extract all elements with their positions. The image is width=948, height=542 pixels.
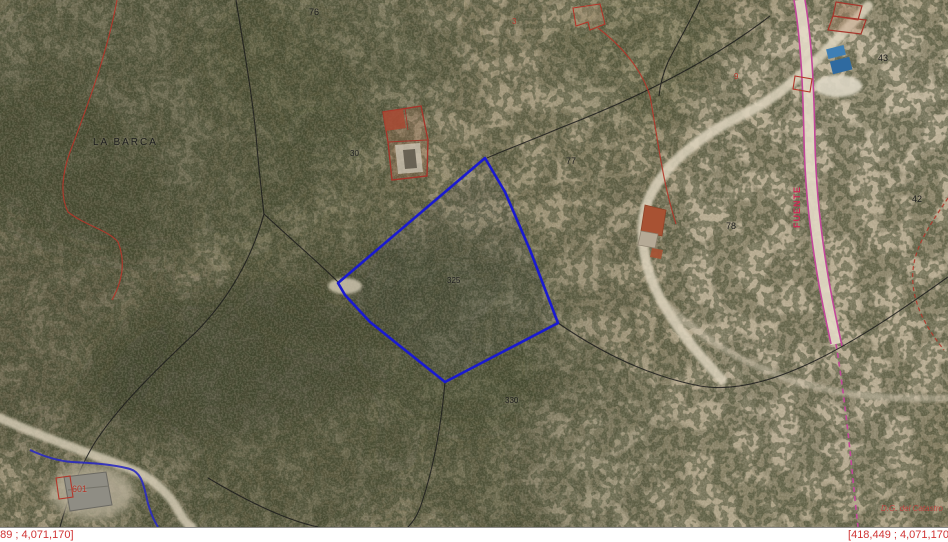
coordinate-statusbar: 089 ; 4,071,170] [418,449 ; 4,071,170] [0,527,948,542]
catastro-map-viewer: LA BARCA 76 3 9 43 42 77 78 30 325 330 6… [0,0,948,542]
building-bottom-left [50,465,134,519]
road-name-label: FUENTE [792,186,802,228]
coords-right: [418,449 ; 4,071,170] [848,529,948,541]
map-viewport[interactable]: LA BARCA 76 3 9 43 42 77 78 30 325 330 6… [0,0,948,527]
coords-left: 089 ; 4,071,170] [0,529,74,541]
map-canvas [0,0,948,527]
catastro-watermark: D.G. del Catastro [881,504,943,513]
